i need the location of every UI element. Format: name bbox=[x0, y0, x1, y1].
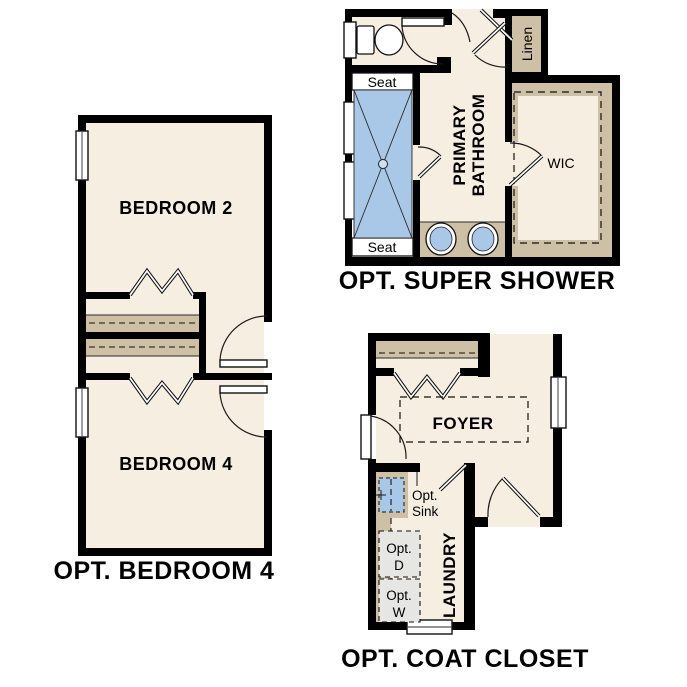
opt-sink-label-line2: Sink bbox=[412, 504, 439, 519]
foyer-label: FOYER bbox=[432, 414, 493, 433]
bedroom2-label: BEDROOM 2 bbox=[119, 198, 233, 218]
seat-top-label: Seat bbox=[368, 74, 397, 90]
laundry-label: LAUNDRY bbox=[440, 532, 459, 618]
plan-opt-super-shower: Seat Seat PRIMARY BATHROOM Linen WIC OPT… bbox=[339, 9, 620, 295]
plan-title-super-shower: OPT. SUPER SHOWER bbox=[339, 267, 616, 295]
bedroom4-label: BEDROOM 4 bbox=[119, 454, 233, 474]
primary-bathroom-label-line2: BATHROOM bbox=[469, 94, 488, 197]
plan-opt-coat-closet: FOYER Opt. Sink Opt. D Opt. W LAUNDRY OP… bbox=[341, 333, 589, 673]
primary-bathroom-label-line1: PRIMARY bbox=[450, 104, 469, 185]
plan-opt-bedroom-4: BEDROOM 2 BEDROOM 4 OPT. BEDROOM 4 bbox=[54, 115, 275, 585]
plan-title-bedroom4: OPT. BEDROOM 4 bbox=[54, 557, 275, 585]
wic-label: WIC bbox=[547, 155, 574, 171]
linen-label: Linen bbox=[519, 27, 535, 61]
coat-closet-shelf bbox=[376, 341, 478, 358]
plan-title-coat-closet: OPT. COAT CLOSET bbox=[341, 645, 589, 673]
floorplan-sheet: BEDROOM 2 BEDROOM 4 OPT. BEDROOM 4 bbox=[0, 0, 687, 687]
opt-d-label-line2: D bbox=[394, 558, 404, 573]
opt-w-label-line1: Opt. bbox=[386, 588, 412, 603]
seat-bottom-label: Seat bbox=[368, 239, 397, 255]
shower-icon bbox=[354, 90, 412, 238]
toilet-icon bbox=[357, 25, 403, 55]
opt-d-label-line1: Opt. bbox=[386, 541, 412, 556]
opt-sink-label-line1: Opt. bbox=[412, 488, 438, 503]
opt-w-label-line2: W bbox=[393, 605, 406, 620]
